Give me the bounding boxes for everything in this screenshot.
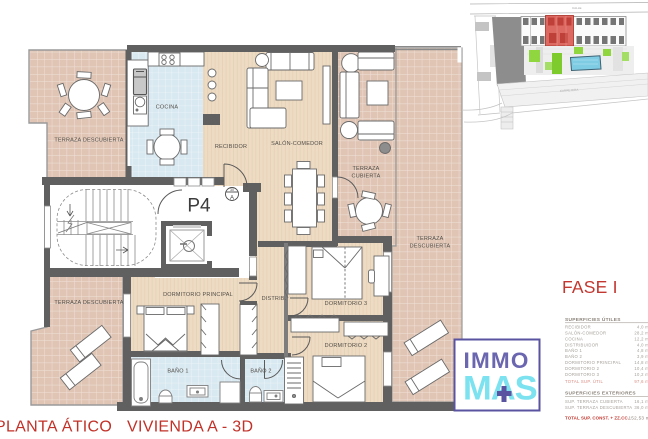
svg-text:DORMITORIO 3: DORMITORIO 3 <box>565 372 600 377</box>
svg-text:SALÓN-COMEDOR: SALÓN-COMEDOR <box>271 140 323 147</box>
svg-text:BAÑO 2: BAÑO 2 <box>565 354 583 359</box>
svg-text:97,6 m: 97,6 m <box>634 379 648 384</box>
svg-text:VIVIENDA A - 3D: VIVIENDA A - 3D <box>127 419 253 436</box>
svg-text:14,8 m: 14,8 m <box>634 360 648 365</box>
svg-text:RECIBIDOR: RECIBIDOR <box>215 144 247 150</box>
svg-text:12,2 m: 12,2 m <box>634 336 648 341</box>
svg-text:DORMITORIO 3: DORMITORIO 3 <box>325 301 368 307</box>
svg-text:3,9 m: 3,9 m <box>637 354 648 359</box>
svg-text:DORMITORIO 2: DORMITORIO 2 <box>325 343 368 349</box>
svg-text:28,2 m: 28,2 m <box>634 330 648 335</box>
svg-text:DORMITORIO 2: DORMITORIO 2 <box>565 366 600 371</box>
svg-text:30: 30 <box>230 188 234 192</box>
svg-text:SALÓN-COMEDOR: SALÓN-COMEDOR <box>565 330 606 335</box>
svg-text:SUP. TERRAZA CUBIERTA: SUP. TERRAZA CUBIERTA <box>565 399 623 404</box>
svg-text:SUPERFICIES EXTERIORES: SUPERFICIES EXTERIORES <box>565 391 636 397</box>
svg-text:FASE I: FASE I <box>562 277 618 297</box>
svg-text:MAS: MAS <box>463 370 537 408</box>
svg-text:SUP. TERRAZA DESCUBIERTA: SUP. TERRAZA DESCUBIERTA <box>565 405 632 410</box>
svg-text:SUPERFICIES ÚTILES: SUPERFICIES ÚTILES <box>565 316 621 323</box>
svg-text:DORMITORIO PRINCIPAL: DORMITORIO PRINCIPAL <box>565 360 621 365</box>
svg-text:BAÑO 1: BAÑO 1 <box>167 368 188 375</box>
svg-text:4,8 m: 4,8 m <box>637 348 648 353</box>
svg-text:152,53 m: 152,53 m <box>628 415 648 420</box>
svg-text:BAÑO 1: BAÑO 1 <box>565 348 583 353</box>
svg-text:4,0 m: 4,0 m <box>637 324 648 329</box>
svg-text:COCINA: COCINA <box>156 105 179 111</box>
svg-text:10,2 m: 10,2 m <box>634 372 648 377</box>
svg-text:COCINA: COCINA <box>565 336 583 341</box>
svg-text:36,0 m: 36,0 m <box>634 405 648 410</box>
svg-text:P4: P4 <box>187 196 211 217</box>
svg-text:DESCUBIERTA: DESCUBIERTA <box>410 244 451 250</box>
svg-text:10,4 m: 10,4 m <box>634 366 648 371</box>
svg-text:CUBIERTA: CUBIERTA <box>352 174 381 180</box>
svg-text:TOTAL SUP. ÚTIL: TOTAL SUP. ÚTIL <box>565 379 603 384</box>
svg-text:TOTAL SUP. CONST. + ZZ.CC.: TOTAL SUP. CONST. + ZZ.CC. <box>565 415 629 420</box>
svg-text:TERRAZA: TERRAZA <box>352 166 379 172</box>
svg-text:TERRAZA: TERRAZA <box>416 236 443 242</box>
svg-text:TERRAZA DESCUBIERTA: TERRAZA DESCUBIERTA <box>54 300 123 306</box>
svg-text:4,0 m: 4,0 m <box>637 342 648 347</box>
svg-text:RECIBIDOR: RECIBIDOR <box>565 324 591 329</box>
svg-text:A: A <box>230 196 234 202</box>
svg-text:CALLE: CALLE <box>572 6 582 10</box>
svg-text:DISTRIB.: DISTRIB. <box>262 296 287 302</box>
svg-text:DISTRIBUIDOR: DISTRIBUIDOR <box>565 342 599 347</box>
svg-text:TERRAZA DESCUBIERTA: TERRAZA DESCUBIERTA <box>54 138 123 144</box>
svg-text:DORMITORIO PRINCIPAL: DORMITORIO PRINCIPAL <box>163 292 233 298</box>
svg-text:PLANTA ÁTICO: PLANTA ÁTICO <box>0 417 112 436</box>
svg-text:16,1 m: 16,1 m <box>634 399 648 404</box>
svg-text:BAÑO 2: BAÑO 2 <box>250 368 271 375</box>
